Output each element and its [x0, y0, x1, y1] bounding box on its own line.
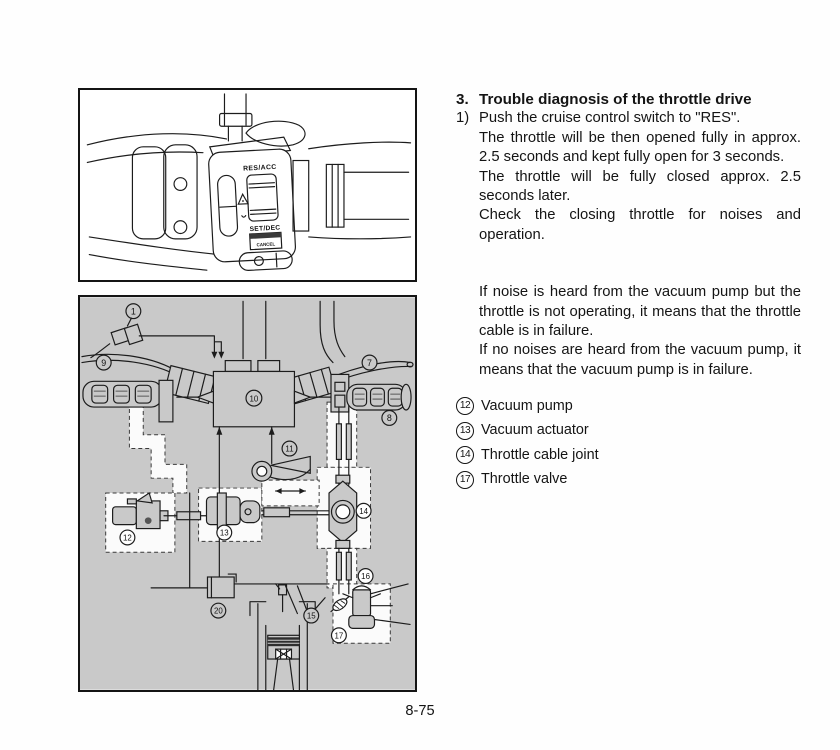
paragraph-1: The throttle will be then opened fully i…	[479, 129, 801, 168]
parts-legend: 12 Vacuum pump 13 Vacuum actuator 14 Thr…	[456, 394, 801, 492]
legend-label: Throttle valve	[481, 470, 567, 489]
throttle-system-diagram-icon: 1 9 7 8 10 11 12 13 14 15	[80, 297, 415, 690]
legend-label: Vacuum pump	[481, 397, 573, 416]
text-column: 3. Trouble diagnosis of the throttle dri…	[456, 90, 801, 492]
callout-20: 20	[214, 607, 223, 616]
switch-housing: RES/ACC SET/DEC CANCEL	[207, 137, 296, 272]
legend-item-throttle-cable-joint: 14 Throttle cable joint	[456, 443, 801, 467]
callout-1: 1	[131, 306, 136, 316]
step-1-number: 1)	[456, 109, 479, 128]
step-1-text: Push the cruise control switch to "RES".	[479, 109, 740, 128]
callout-14: 14	[359, 507, 368, 516]
legend-number: 13	[456, 422, 474, 440]
rod-sleeve	[177, 512, 201, 520]
callout-17: 17	[335, 631, 344, 640]
callout-10: 10	[250, 394, 259, 403]
callout-12: 12	[123, 534, 132, 543]
legend-label: Throttle cable joint	[481, 446, 599, 465]
section-heading: 3. Trouble diagnosis of the throttle dri…	[456, 90, 801, 109]
callout-15: 15	[307, 612, 316, 621]
section-title: Trouble diagnosis of the throttle drive	[479, 90, 752, 109]
legend-label: Vacuum actuator	[481, 421, 589, 440]
page-number: 8-75	[0, 703, 840, 719]
top-lever	[246, 121, 305, 146]
cancel-button: CANCEL	[250, 232, 282, 249]
callout-16: 16	[361, 572, 370, 581]
paragraph-5: If no noises are heard from the vacuum p…	[479, 341, 801, 380]
legend-number: 17	[456, 471, 474, 489]
legend-number: 14	[456, 446, 474, 464]
paragraph-4: If noise is heard from the vacuum pump b…	[479, 283, 801, 341]
step-1: 1) Push the cruise control switch to "RE…	[456, 109, 801, 128]
cruise-switch-figure: RES/ACC SET/DEC CANCEL	[78, 88, 417, 282]
callout-11: 11	[285, 445, 293, 454]
legend-number: 12	[456, 397, 474, 415]
manual-page: RES/ACC SET/DEC CANCEL	[0, 0, 840, 750]
callout-8: 8	[387, 413, 392, 423]
legend-item-vacuum-actuator: 13 Vacuum actuator	[456, 419, 801, 443]
left-bodywork	[87, 134, 226, 271]
callout-7: 7	[367, 358, 372, 368]
paragraph-3: Check the closing throttle for noises an…	[479, 206, 801, 245]
callout-13: 13	[220, 529, 229, 538]
cancel-label: CANCEL	[256, 241, 275, 247]
legend-item-throttle-valve: 17 Throttle valve	[456, 467, 801, 491]
legend-item-vacuum-pump: 12 Vacuum pump	[456, 394, 801, 418]
cruise-switch-illustration-icon: RES/ACC SET/DEC CANCEL	[80, 90, 415, 280]
section-number: 3.	[456, 90, 479, 109]
callout-9: 9	[101, 358, 106, 368]
throttle-system-figure: 1 9 7 8 10 11 12 13 14 15	[78, 295, 417, 692]
paragraph-2: The throttle will be fully closed approx…	[479, 168, 801, 207]
right-handlebar	[293, 142, 411, 239]
